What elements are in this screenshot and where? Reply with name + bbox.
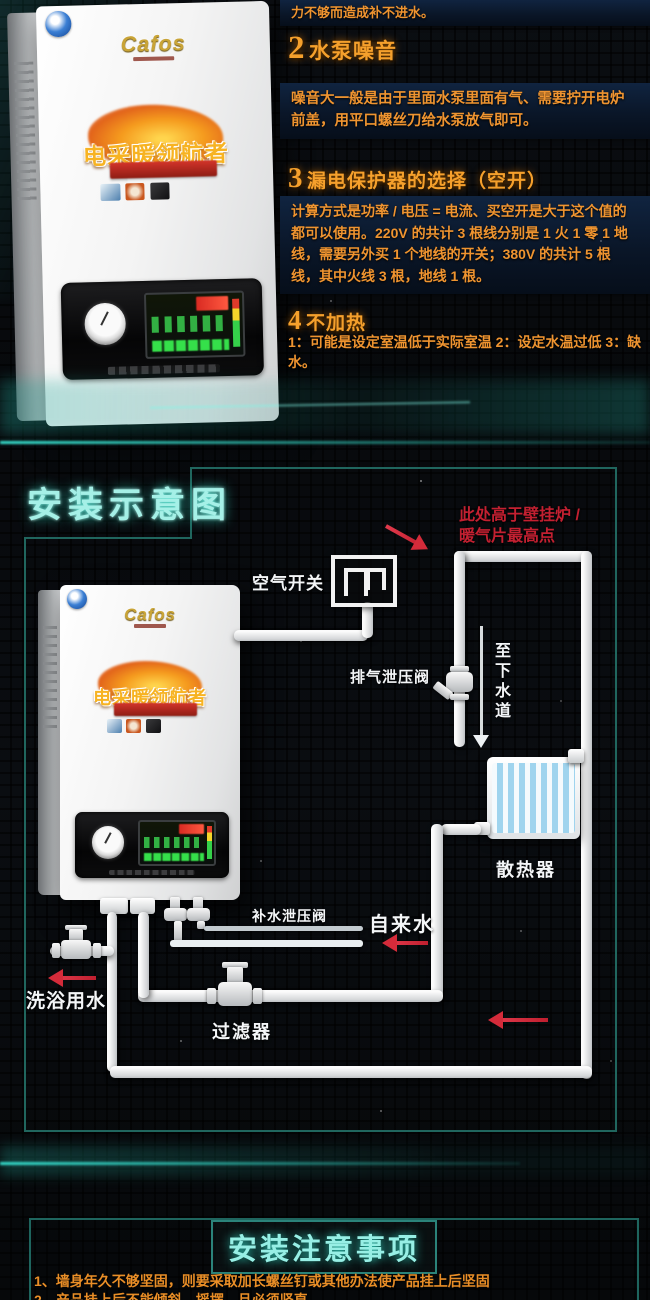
radiator-top-fitting (568, 749, 584, 763)
control-panel (75, 812, 230, 878)
return-up-pipe (138, 912, 149, 998)
chip-icon (101, 183, 121, 201)
boiler-vents (14, 62, 36, 201)
breaker-symbol-icon (344, 568, 368, 596)
faq-heading-2: 2 水泵噪音 (288, 30, 397, 67)
height-note-line1: 此处高于壁挂炉 / (459, 505, 580, 526)
boiler-front-panel: Cafos 电采暖领航者 (36, 1, 279, 427)
display-green-rows (152, 315, 224, 333)
filter-line-pipe (138, 990, 443, 1002)
flow-arrow (494, 1018, 548, 1022)
display-green-rows (144, 837, 199, 848)
loop-right-pipe (581, 551, 592, 1079)
faq-heading-3: 3 漏电保护器的选择（空开） (288, 162, 547, 195)
faq-number: 2 (288, 30, 305, 66)
display-digits (153, 338, 230, 351)
product-detail-page: Cafos 电采暖领航者 力不够而造成补不进水。 2 水泵噪音 (0, 0, 650, 1300)
diagram-boiler: Cafos 电采暖领航者 (38, 585, 240, 900)
display-digits (144, 853, 203, 861)
faq-body-text: 噪音大一般是由于里面水泵里面有气、需要拧开电炉前盖，用平口螺丝刀给水泵放气即可。 (280, 83, 650, 137)
wire-boiler-to-switch (234, 630, 368, 641)
product-photo-boiler: Cafos 电采暖领航者 (7, 1, 279, 427)
sewer-arrow-head (473, 735, 489, 756)
faq-title: 漏电保护器的选择（空开） (307, 171, 547, 192)
pressure-gauge (92, 826, 125, 859)
led-display (138, 820, 216, 866)
display-level-bar (207, 826, 212, 859)
faq-title: 不加热 (306, 313, 366, 334)
star-dots (0, 0, 2, 2)
note-item: 2、产品挂上后不能倾斜，摇摆，且必须竖直 (34, 1290, 634, 1300)
control-panel (61, 278, 264, 379)
bottom-supply-pipe (110, 1066, 592, 1078)
faq-title: 水泵噪音 (309, 40, 397, 63)
teal-glow-line (0, 441, 650, 444)
air-switch-label: 空气开关 (252, 569, 324, 594)
makeup-valve-left-body (164, 908, 187, 921)
filter-flange (253, 988, 262, 1004)
pressure-gauge (84, 303, 127, 346)
notes-title: 安装注意事项 (228, 1226, 420, 1268)
exhaust-valve-flange (450, 694, 469, 700)
shower-water-label: 洗浴用水 (26, 986, 106, 1013)
height-note-line2: 暖气片最高点 (459, 526, 580, 547)
makeup-valve-label: 补水泄压阀 (252, 906, 327, 926)
exhaust-valve-label: 排气泄压阀 (350, 666, 430, 687)
filter-flange (207, 988, 216, 1004)
chip-icon (146, 719, 161, 733)
faq-body-text-4: 1：可能是设定室温低于实际室温 2：设定水温过低 3：缺水。 (288, 332, 646, 372)
shower-valve-flange (93, 943, 101, 958)
filter-label: 过滤器 (212, 1018, 272, 1044)
feature-chips (101, 182, 170, 201)
exhaust-valve-body (446, 672, 473, 692)
loop-top-pipe (454, 551, 592, 562)
display-level-bar (232, 299, 240, 347)
led-display (144, 290, 246, 358)
tapwater-thin-pipe (170, 940, 363, 947)
shower-valve-flange (52, 943, 60, 958)
air-switch-box (331, 555, 397, 607)
faq-number: 4 (288, 305, 302, 335)
loop-left-pipe (454, 551, 465, 747)
slogan-banner (110, 160, 218, 179)
makeup-thin-pipe (204, 926, 363, 931)
sewer-arrow-line (480, 626, 483, 736)
panel-buttons (107, 364, 219, 374)
sewer-label: 至下水道 (488, 642, 512, 762)
radiator-fins (492, 763, 575, 833)
feature-chips (107, 719, 161, 733)
diagram-title: 安装示意图 (27, 477, 232, 528)
radiator (487, 757, 580, 839)
faq-intro-bar: 力不够而造成补不进水。 (280, 0, 650, 26)
wire-up-to-switch (362, 602, 373, 638)
tap-water-label: 自来水 (369, 908, 435, 937)
height-note: 此处高于壁挂炉 / 暖气片最高点 (459, 505, 580, 547)
boiler-front-panel: Cafos 电采暖领航者 (60, 585, 240, 900)
radiator-label: 散热器 (496, 856, 556, 882)
breaker-symbol-icon (366, 568, 386, 590)
faq-body-bar-2: 噪音大一般是由于里面水泵里面有气、需要拧开电炉前盖，用平口螺丝刀给水泵放气即可。 (280, 83, 650, 139)
display-red-segment (196, 296, 229, 310)
return-connector (441, 824, 481, 835)
makeup-valve-right-body (187, 908, 210, 921)
shower-water-arrow (54, 976, 96, 980)
chip-icon (125, 182, 145, 200)
chip-icon (126, 719, 141, 733)
filter-body (218, 982, 252, 1006)
brand-logo: Cafos (60, 605, 240, 625)
shower-valve-body (61, 940, 91, 959)
slogan-banner (114, 703, 197, 716)
makeup-stem (174, 921, 182, 942)
tap-water-arrow (388, 941, 428, 945)
notes-title-box: 安装注意事项 (211, 1220, 437, 1274)
faq-intro-text: 力不够而造成补不进水。 (280, 0, 650, 26)
boiler-vents (43, 626, 57, 730)
brand-sub-line (133, 56, 175, 61)
faq-body-text: 计算方式是功率 / 电压 = 电流、买空开是大于这个值的都可以使用。220V 的… (280, 196, 650, 292)
panel-buttons (109, 870, 196, 875)
chip-icon (150, 182, 170, 200)
supply-down-pipe (107, 912, 117, 1072)
faq-number: 3 (288, 162, 303, 194)
brand-logo: Cafos (36, 28, 270, 60)
faq-body-bar-3: 计算方式是功率 / 电压 = 电流、买空开是大于这个值的都可以使用。220V 的… (280, 196, 650, 294)
display-red-segment (179, 824, 204, 833)
brand-sub-line (134, 624, 167, 628)
chip-icon (107, 719, 122, 733)
note-item: 1、墙身年久不够坚固，则要采取加长螺丝钉或其他办法使产品挂上后坚固 (34, 1271, 634, 1291)
